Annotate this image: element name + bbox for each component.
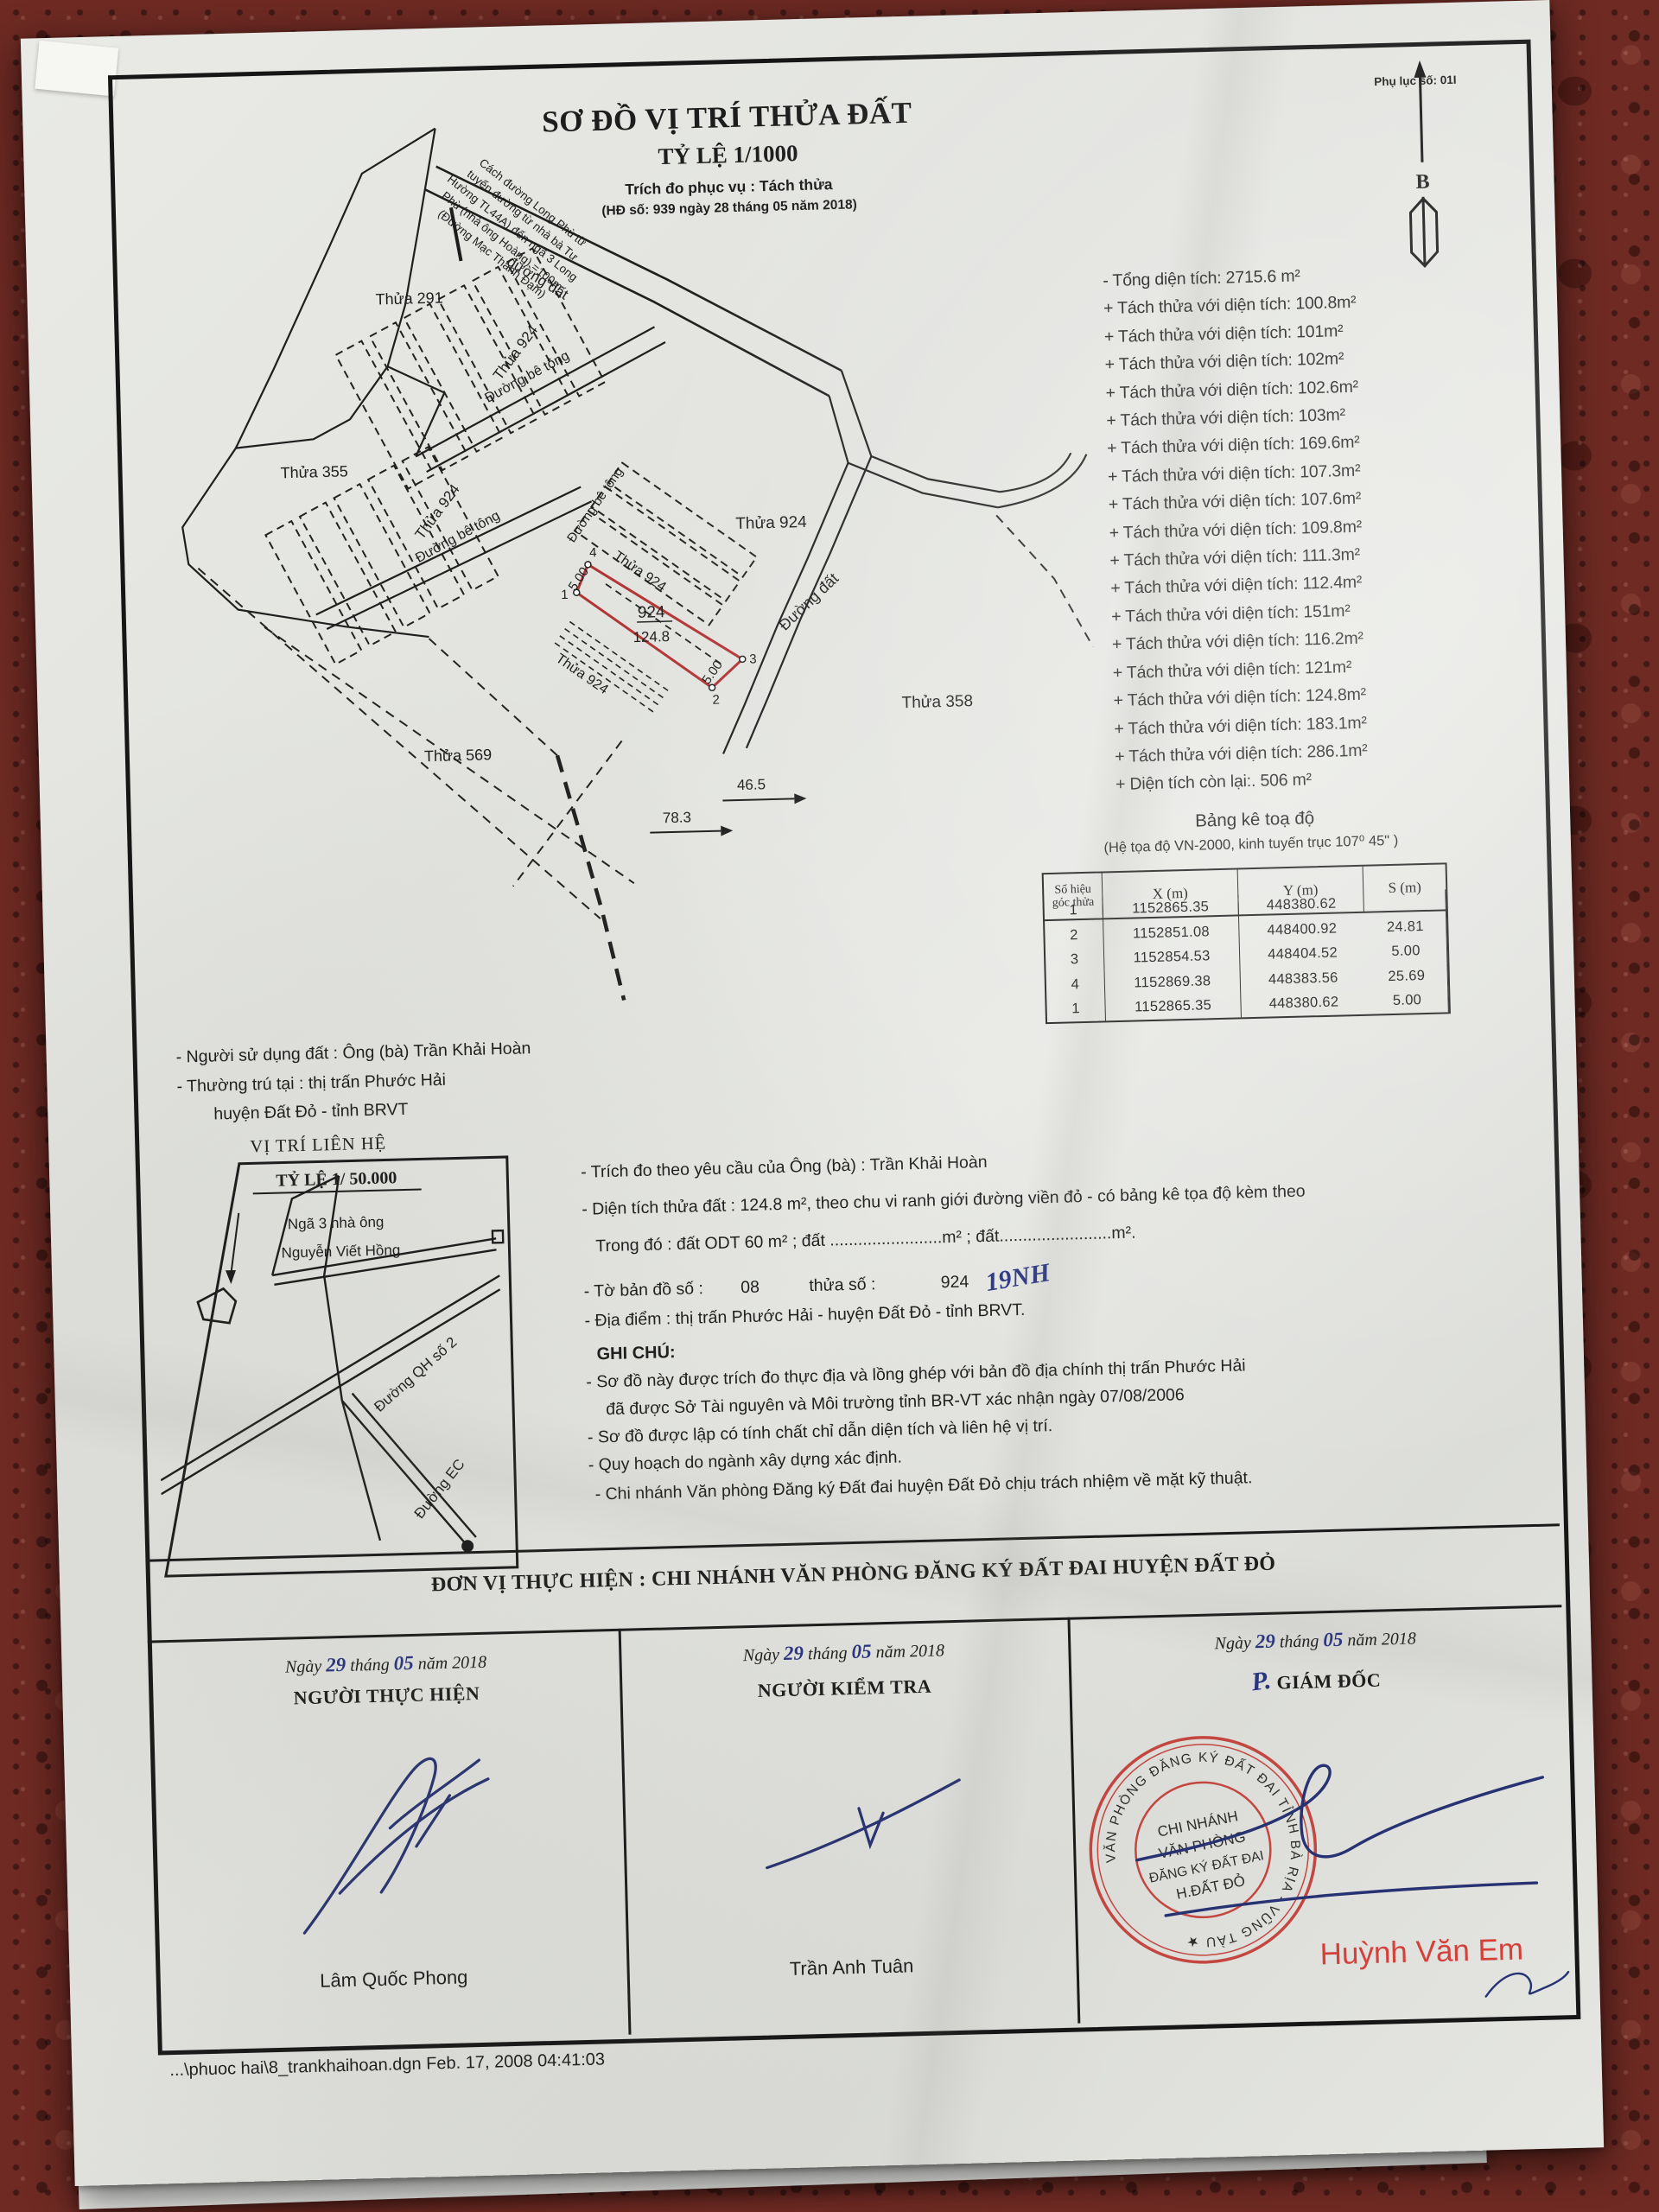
coords-cell-y: 448400.92 — [1239, 916, 1365, 944]
handwritten-parcel-note: 19NH — [983, 1258, 1052, 1298]
coords-cell-x: 1152869.38 — [1105, 968, 1242, 995]
signature-col2 — [747, 1770, 975, 1888]
label-thua-924-d: Thửa 924 — [553, 652, 611, 697]
area-summary-list: - Tổng diện tích: 2715.6 m²+ Tách thửa v… — [1103, 261, 1369, 799]
coords-cell-s: 5.00 — [1365, 938, 1448, 965]
coords-cell-s: 25.69 — [1365, 963, 1448, 989]
vertex-2: 2 — [712, 693, 720, 708]
north-label: B — [1415, 171, 1430, 194]
folded-tab — [35, 41, 118, 97]
dim-78-3: 78.3 — [663, 809, 692, 826]
locator-map: VỊ TRÍ LIÊN HỆ TỶ LỆ 1/ 50.000 Ngã 3 nhà… — [152, 1111, 527, 1604]
document-paper: Phụ lục số: 01I SƠ ĐỒ VỊ TRÍ THỬA ĐẤT TỶ… — [21, 0, 1604, 2186]
label-thua-355: Thửa 355 — [280, 462, 348, 481]
label-duong-dat: Đường đất — [775, 569, 842, 633]
vertex-1: 1 — [561, 588, 569, 602]
map-dashed-boundaries — [197, 513, 1102, 1011]
label-thua-924-big: Thửa 924 — [735, 513, 807, 533]
label-duong-betong-c: Đường bê tông — [564, 465, 626, 545]
label-thua-291: Thửa 291 — [375, 289, 443, 308]
vertex-4: 4 — [589, 545, 597, 560]
parcel-label: thửa số : — [809, 1274, 876, 1295]
coords-cell-s: 5.00 — [1366, 988, 1449, 1014]
coords-cell-y: 448380.62 — [1238, 891, 1364, 918]
notes-title: GHI CHÚ: — [596, 1343, 676, 1364]
coords-cell-y: 448380.62 — [1241, 989, 1367, 1017]
photo-of-document: { "page": { "appendix_note": "Phụ lục số… — [0, 0, 1659, 2212]
locator-title: VỊ TRÍ LIÊN HỆ — [250, 1133, 386, 1156]
role-prefix-handwritten: P. — [1249, 1666, 1273, 1698]
label-d500-a: 5.00 — [566, 564, 593, 594]
coords-cell-stt: 4 — [1046, 971, 1106, 997]
coords-cell-s — [1363, 889, 1446, 916]
coords-cell-x: 1152865.35 — [1103, 894, 1239, 922]
coords-cell-s: 24.81 — [1364, 913, 1447, 940]
dim-46-5: 46.5 — [737, 776, 766, 793]
coords-cell-stt: 2 — [1045, 922, 1104, 948]
signature-col3 — [1128, 1745, 1564, 1938]
parcel-value: 924 — [940, 1272, 969, 1292]
label-thua-569: Thửa 569 — [424, 746, 493, 765]
sheet-label: - Tờ bản đồ số : — [583, 1279, 703, 1300]
coords-cell-x: 1152865.35 — [1105, 993, 1242, 1020]
label-thua-358: Thửa 358 — [901, 692, 973, 712]
coords-cell-y: 448383.56 — [1241, 965, 1367, 993]
road-note-block: Cách đường Long Phù từ tuyến đường từ nh… — [424, 147, 601, 309]
coords-cell-x: 1152851.08 — [1103, 918, 1240, 946]
label-parcel-no: 924 — [638, 603, 666, 622]
coords-cell-x: 1152854.53 — [1104, 944, 1241, 971]
north-arrow: B — [1391, 60, 1457, 277]
coords-cell-stt: 3 — [1046, 947, 1105, 973]
cadastral-map: Thửa 291 Thửa 355 Thửa 569 Thửa 358 Thửa… — [44, 88, 1173, 1066]
label-thua-924-c: Thửa 924 — [611, 549, 669, 594]
label-parcel-area: 124.8 — [632, 628, 670, 645]
locator-note-1: Ngã 3 nhà ông — [288, 1214, 385, 1233]
vertex-3: 3 — [749, 652, 757, 666]
coords-cell-stt: 1 — [1044, 898, 1103, 924]
map-roads — [173, 112, 1094, 767]
locator-scale: TỶ LỆ 1/ 50.000 — [276, 1167, 397, 1191]
signature-col1 — [284, 1742, 531, 1955]
locator-note-2: Nguyễn Viết Hồng — [281, 1242, 400, 1261]
footer-file-line: ...\phuoc hai\8_trankhaihoan.dgn Feb. 17… — [169, 2050, 605, 2081]
coords-table: Số hiệu góc thửa X (m) Y (m) S (m) 1 115… — [1042, 862, 1451, 1024]
coords-cell-y: 448404.52 — [1240, 940, 1366, 968]
coords-cell-stt: 1 — [1046, 996, 1106, 1022]
sheet-value: 08 — [741, 1278, 760, 1298]
